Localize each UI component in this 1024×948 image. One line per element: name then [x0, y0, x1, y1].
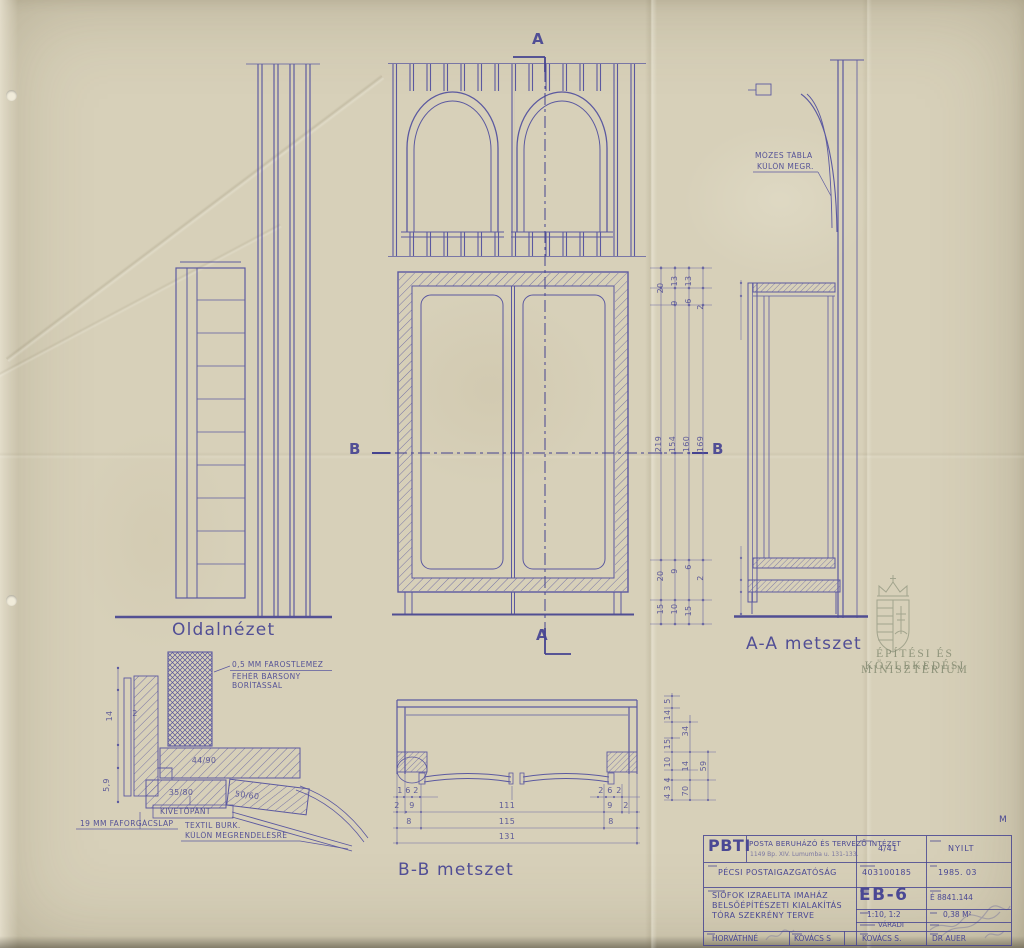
section-marker-b-right: B	[712, 442, 723, 458]
dim-bb-right-8: 70	[682, 786, 690, 797]
field-classification: NYILT	[948, 845, 974, 853]
blueprint-sheet: ÉPÍTÉSI ÉS KÖZLEKEDÉSI MINISZTÉRIUM Olda…	[0, 0, 1024, 948]
ministry-crest-watermark	[870, 572, 916, 658]
dim-bb-right-3: 15	[664, 739, 672, 750]
dim-height-2: 160	[683, 436, 691, 452]
dim-bb-right-5: 14	[682, 761, 690, 772]
field-scale: 1:10, 1:2	[867, 911, 901, 919]
note-kiveto: KIVETŐPÁNT	[160, 808, 211, 816]
side-view-title: Oldalnézet	[172, 622, 275, 640]
section-marker-b-left: B	[349, 442, 360, 458]
dim-bottom-cluster-3: 2	[697, 575, 705, 580]
dim-bb-r1l-1: 6	[405, 787, 410, 795]
field-job-number: 403100185	[862, 869, 911, 877]
dim-bottom-cluster-5: 10	[671, 604, 679, 615]
front-elevation	[388, 64, 646, 615]
dim-bb-right-2: 34	[682, 726, 690, 737]
dim-bb-r3-2: 8	[608, 818, 613, 826]
field-code: 4/41	[878, 845, 898, 853]
dim-bb-right-0: 5	[664, 698, 672, 703]
dim-height-0: 219	[655, 436, 663, 452]
note-textil-1: TEXTIL BURK.	[185, 822, 241, 830]
section-bb-title: B-B metszet	[398, 862, 514, 880]
dim-bottom-cluster-4: 15	[657, 604, 665, 615]
dim-detail-left-1: 2	[132, 710, 137, 718]
dim-top-cluster-4: 6	[685, 298, 693, 303]
dim-bb-right-6: 4 3 4	[664, 777, 672, 799]
dim-bb-r2-3: 9	[607, 802, 612, 810]
dim-bb-r1l-0: 1	[397, 787, 402, 795]
dim-detail-left-2: 5,9	[103, 778, 111, 792]
dim-bb-r3-0: 8	[406, 818, 411, 826]
dim-bb-r2-0: 2	[394, 802, 399, 810]
dim-detail-size-1: 35/80	[169, 789, 194, 797]
dim-bb-right-1: 14	[664, 710, 672, 721]
dim-top-cluster-3: 9	[671, 300, 679, 305]
drawing-number: EB-6	[859, 887, 908, 905]
section-marker-a-top: A	[532, 32, 544, 48]
section-marker-a-bottom: A	[536, 628, 548, 644]
dim-bb-r4: 131	[499, 833, 515, 841]
watermark-line2: MINISZTÉRIUM	[832, 664, 998, 676]
section-line-a	[513, 57, 571, 654]
company-address: 1149 Bp. XIV. Lumumba u. 131-133.	[750, 852, 858, 858]
dim-bb-right-4: 10	[664, 757, 672, 768]
field-editor: VÁRADI	[878, 922, 904, 929]
note-farost-2: FEHÉR BÁRSONY	[232, 673, 301, 681]
field-lead-designer: KOVÁCS S.	[862, 935, 901, 943]
project-line-3: TÓRA SZEKRÉNY TERVE	[712, 912, 815, 920]
project-line-2: BELSŐÉPÍTÉSZETI KIALAKÍTÁS	[712, 902, 842, 910]
dim-bb-r2-1: 9	[409, 802, 414, 810]
dim-bb-r2-4: 2	[623, 802, 628, 810]
dim-bb-r1r-0: 2	[598, 787, 603, 795]
archive-number: É 8841.144	[930, 894, 973, 902]
dim-top-cluster-1: 13	[671, 276, 679, 287]
field-date: 1985. 03	[938, 869, 977, 877]
side-view	[115, 64, 332, 617]
dim-top-cluster-0: 20	[657, 283, 665, 294]
dim-height-1: 154	[669, 436, 677, 452]
company-logo: PBTI	[708, 838, 751, 855]
note-mozes-2: KÜLÖN MEGR.	[757, 163, 814, 171]
field-designer: KOVÁCS S	[794, 935, 831, 943]
dim-bb-r2-2: 111	[499, 802, 515, 810]
section-aa-view	[734, 60, 868, 618]
field-approved-by: DR AUER	[932, 935, 966, 943]
dim-detail-left-0: 14	[106, 711, 114, 722]
dim-bb-right-7: 59	[700, 761, 708, 772]
dim-height-3: 169	[697, 436, 705, 452]
dim-top-cluster-2: 13	[685, 276, 693, 287]
field-area: 0,38 M²	[943, 911, 972, 919]
dim-bottom-cluster-6: 15	[685, 606, 693, 617]
note-mozes-1: MÓZES TÁBLA	[755, 152, 813, 160]
note-faforgacs: 19 MM FAFORGÁCSLAP	[80, 820, 173, 828]
note-farost-1: 0,5 MM FAROSTLEMEZ	[232, 661, 323, 669]
project-line-1: SIÓFOK IZRAELITA IMAHÁZ	[712, 892, 828, 900]
dim-top-cluster-5: 2	[697, 304, 705, 309]
note-farost-3: BORÍTÁSSAL	[232, 682, 282, 690]
field-client: PÉCSI POSTAIGAZGATÓSÁG	[718, 869, 837, 877]
section-aa-title: A-A metszet	[746, 636, 862, 654]
dim-bb-r1l-2: 2	[413, 787, 418, 795]
dim-bottom-cluster-0: 20	[657, 571, 665, 582]
note-textil-2: KÜLÖN MEGRENDELÉSRE	[185, 832, 287, 840]
dim-bottom-cluster-2: 6	[685, 564, 693, 569]
dim-bb-r1r-2: 2	[616, 787, 621, 795]
dim-detail-size-0: 44/90	[192, 757, 217, 765]
dim-bottom-cluster-1: 9	[671, 568, 679, 573]
field-drafter: HORVÁTHNÉ	[712, 935, 758, 943]
corner-mark-m: M	[999, 816, 1007, 825]
dim-bb-r1r-1: 6	[607, 787, 612, 795]
dim-bb-r3-1: 115	[499, 818, 515, 826]
